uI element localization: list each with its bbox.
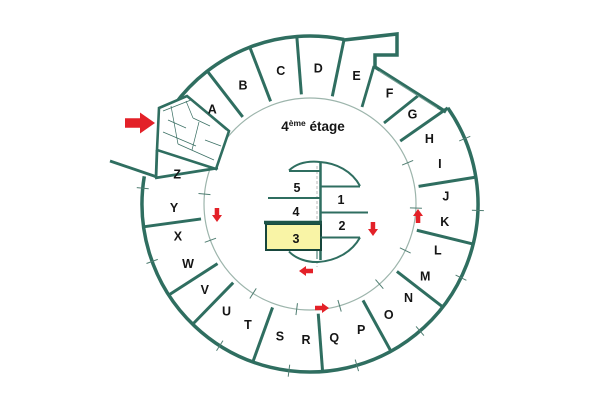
ring-room-label-I: I [438, 157, 441, 171]
core-arrow-bottom-left [299, 266, 313, 276]
ring-room-label-C: C [276, 64, 285, 78]
room-divider-wall-10 [253, 307, 273, 362]
ring-room-label-J: J [442, 189, 449, 203]
ring-room-label-M: M [420, 269, 430, 283]
ring-room-label-Q: Q [329, 331, 339, 345]
ring-room-label-W: W [182, 257, 194, 271]
core-room-label-5: 5 [294, 181, 301, 195]
ring-room-label-A: A [208, 102, 217, 116]
ring-room-label-Z: Z [173, 168, 181, 182]
ring-room-label-D: D [314, 61, 323, 75]
ring-room-label-S: S [276, 330, 284, 344]
core-arrow-right-down [368, 222, 378, 236]
floor-plan-svg: ABCDEFGHIJKLMNOPQRSTUVWXYZ543124ème étag… [0, 0, 600, 400]
entrance-arrow [125, 113, 155, 134]
inner-tick-2 [250, 288, 256, 298]
ring-room-label-Y: Y [170, 201, 179, 215]
room-divider-wall-2 [297, 37, 302, 95]
corridor-arrow-bottom-right [315, 303, 329, 313]
inner-tick-0 [198, 193, 210, 194]
room-divider-wall-5 [419, 177, 476, 186]
inner-tick-8 [402, 160, 413, 165]
ring-room-label-G: G [408, 108, 418, 122]
ring-room-label-X: X [174, 229, 183, 243]
wall-segment-0 [362, 66, 374, 107]
wall-segment-5 [156, 150, 157, 178]
core-room-label-1: 1 [338, 193, 345, 207]
ring-room-label-O: O [384, 308, 394, 322]
core-room-label-4: 4 [293, 205, 300, 219]
room-divider-wall-9 [318, 314, 322, 372]
core-room-label-2: 2 [339, 219, 346, 233]
ring-room-label-K: K [440, 215, 449, 229]
ring-room-label-L: L [434, 244, 442, 258]
ring-room-label-U: U [222, 304, 231, 318]
ring-room-label-V: V [201, 283, 210, 297]
floor-title: 4ème étage [281, 118, 345, 134]
entrance-block-outline [157, 96, 229, 169]
floor-plan: ABCDEFGHIJKLMNOPQRSTUVWXYZ543124ème étag… [0, 0, 600, 400]
room-divider-wall-3 [332, 39, 344, 96]
corridor-arrow-left-down [212, 208, 222, 222]
inner-tick-6 [400, 248, 411, 253]
room-divider-wall-6 [417, 230, 473, 244]
ring-room-label-F: F [386, 87, 394, 101]
ring-room-label-B: B [238, 79, 247, 93]
room-divider-wall-13 [144, 219, 201, 227]
core-room-label-3: 3 [293, 232, 300, 246]
ring-room-label-P: P [357, 323, 365, 337]
ring-room-label-E: E [352, 69, 360, 83]
ring-room-label-N: N [404, 291, 413, 305]
ring-room-label-T: T [244, 318, 252, 332]
ring-room-label-H: H [425, 132, 434, 146]
room-divider-wall-1 [250, 47, 271, 101]
ring-room-label-R: R [301, 333, 310, 347]
wall-segment-4 [110, 161, 157, 177]
outer-tick-0 [137, 188, 149, 189]
